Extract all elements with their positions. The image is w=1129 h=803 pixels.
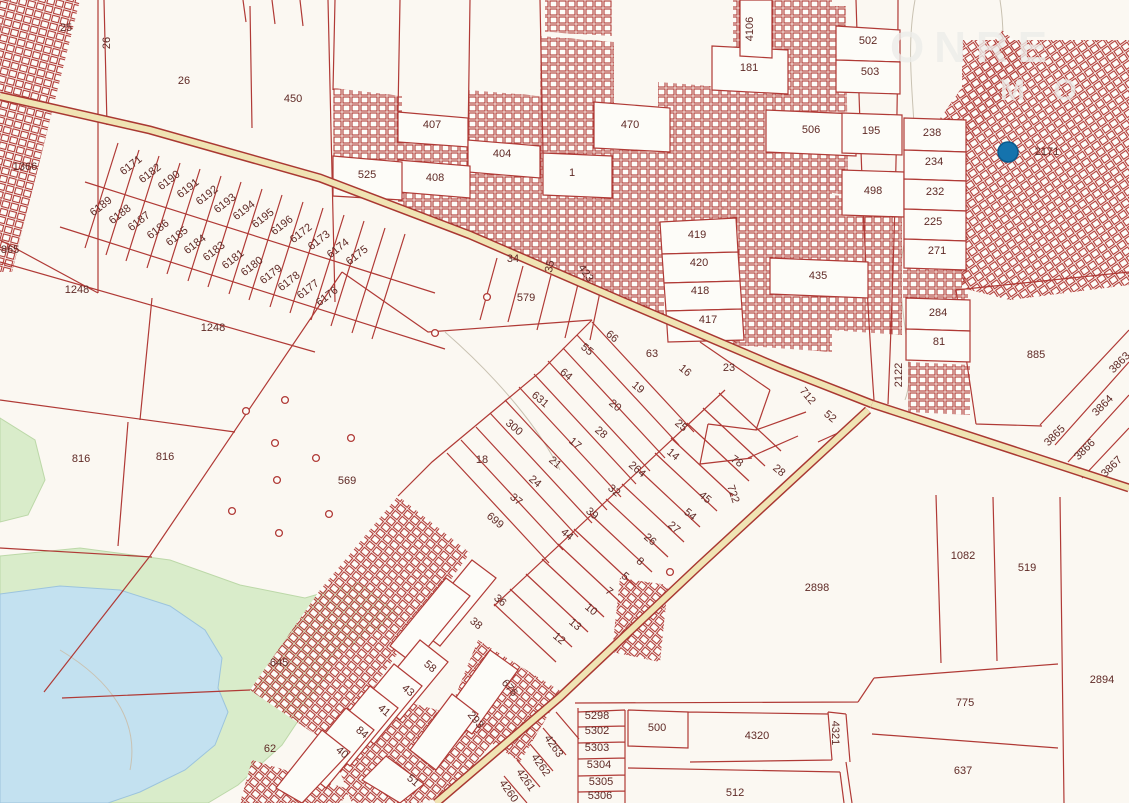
parcel-label-232: 232 bbox=[926, 186, 944, 198]
survey-point bbox=[243, 408, 250, 415]
parcel-label-885: 885 bbox=[1027, 349, 1045, 361]
parcel-label-569: 569 bbox=[338, 475, 356, 487]
parcel-label-35: 35 bbox=[543, 259, 557, 273]
parcel-label-2171: 2171 bbox=[1035, 146, 1059, 158]
parcel-label-5305: 5305 bbox=[589, 776, 613, 788]
parcel-label-816: 816 bbox=[72, 453, 90, 465]
parcel-label-419: 419 bbox=[688, 229, 706, 241]
parcel-label-420: 420 bbox=[690, 257, 708, 269]
parcel-label-34: 34 bbox=[507, 253, 519, 265]
parcel-label-5298: 5298 bbox=[585, 710, 609, 722]
parcel-label-4321: 4321 bbox=[829, 721, 841, 745]
survey-point bbox=[313, 455, 320, 462]
parcel-label-645: 645 bbox=[270, 657, 288, 669]
parcel-label-25: 25 bbox=[60, 22, 72, 34]
parcel-label-775: 775 bbox=[956, 697, 974, 709]
survey-point bbox=[272, 440, 279, 447]
parcel-label-500: 500 bbox=[648, 722, 666, 734]
parcel-label-81: 81 bbox=[933, 336, 945, 348]
parcel-label-450: 450 bbox=[284, 93, 302, 105]
parcel-label-62: 62 bbox=[264, 743, 276, 755]
watermark-text-1: ONRE bbox=[890, 23, 1057, 72]
survey-point bbox=[282, 397, 289, 404]
parcel-label-181: 181 bbox=[740, 62, 758, 74]
parcel-label-503: 503 bbox=[861, 66, 879, 78]
parcel-label-5302: 5302 bbox=[585, 725, 609, 737]
survey-point bbox=[432, 330, 439, 337]
parcel-label-225: 225 bbox=[924, 216, 942, 228]
parcel-label-5306: 5306 bbox=[588, 790, 612, 802]
parcel-label-407: 407 bbox=[423, 119, 441, 131]
survey-point bbox=[274, 477, 281, 484]
survey-point bbox=[326, 511, 333, 518]
location-marker[interactable] bbox=[998, 142, 1018, 162]
parcel-label-1082: 1082 bbox=[951, 550, 975, 562]
parcel-label-408: 408 bbox=[426, 172, 444, 184]
parcel-label-195: 195 bbox=[862, 125, 880, 137]
parcel-label-816: 816 bbox=[156, 451, 174, 463]
parcel-label-271: 271 bbox=[928, 245, 946, 257]
parcel-label-435: 435 bbox=[809, 270, 827, 282]
parcel-label-63: 63 bbox=[646, 348, 658, 360]
cadastral-map-canvas[interactable]: 2526264501366865124812488168165696456252… bbox=[0, 0, 1129, 803]
blue-location-dot[interactable] bbox=[998, 142, 1018, 162]
parcel-label-2898: 2898 bbox=[805, 582, 829, 594]
parcel-label-865: 865 bbox=[1, 244, 19, 256]
parcel-label-498: 498 bbox=[864, 185, 882, 197]
parcel-label-1248: 1248 bbox=[201, 322, 225, 334]
parcel-label-18: 18 bbox=[476, 454, 488, 466]
parcel-label-238: 238 bbox=[923, 127, 941, 139]
parcel-label-26: 26 bbox=[178, 75, 190, 87]
survey-point bbox=[276, 530, 283, 537]
parcel-label-4320: 4320 bbox=[745, 730, 769, 742]
parcel-label-506: 506 bbox=[802, 124, 820, 136]
parcel-label-2122: 2122 bbox=[893, 363, 905, 387]
survey-point bbox=[667, 569, 674, 576]
cadastral-map[interactable]: 2526264501366865124812488168165696456252… bbox=[0, 0, 1129, 803]
parcel-label-5303: 5303 bbox=[585, 742, 609, 754]
parcel-label-404: 404 bbox=[493, 148, 511, 160]
parcel-label-470: 470 bbox=[621, 119, 639, 131]
survey-point bbox=[229, 508, 236, 515]
parcel-label-1366: 1366 bbox=[13, 161, 37, 173]
parcel-label-284: 284 bbox=[929, 307, 947, 319]
survey-point bbox=[484, 294, 491, 301]
parcel-label-637: 637 bbox=[954, 765, 972, 777]
parcel-label-234: 234 bbox=[925, 156, 943, 168]
parcel-label-418: 418 bbox=[691, 285, 709, 297]
parcel-label-26: 26 bbox=[101, 37, 113, 49]
parcel-label-525: 525 bbox=[358, 169, 376, 181]
parcel-label-5304: 5304 bbox=[587, 759, 611, 771]
parcel-label-2894: 2894 bbox=[1090, 674, 1114, 686]
parcel-label-1248: 1248 bbox=[65, 284, 89, 296]
survey-point bbox=[348, 435, 355, 442]
parcel-label-1: 1 bbox=[569, 167, 575, 179]
parcel-label-519: 519 bbox=[1018, 562, 1036, 574]
parcel-label-23: 23 bbox=[723, 362, 735, 374]
parcel-label-512: 512 bbox=[726, 787, 744, 799]
parcel-label-417: 417 bbox=[699, 314, 717, 326]
parcel-label-579: 579 bbox=[517, 292, 535, 304]
watermark-text-2: M O bbox=[1000, 74, 1087, 107]
parcel-label-4106: 4106 bbox=[744, 17, 756, 41]
parcel-label-502: 502 bbox=[859, 35, 877, 47]
